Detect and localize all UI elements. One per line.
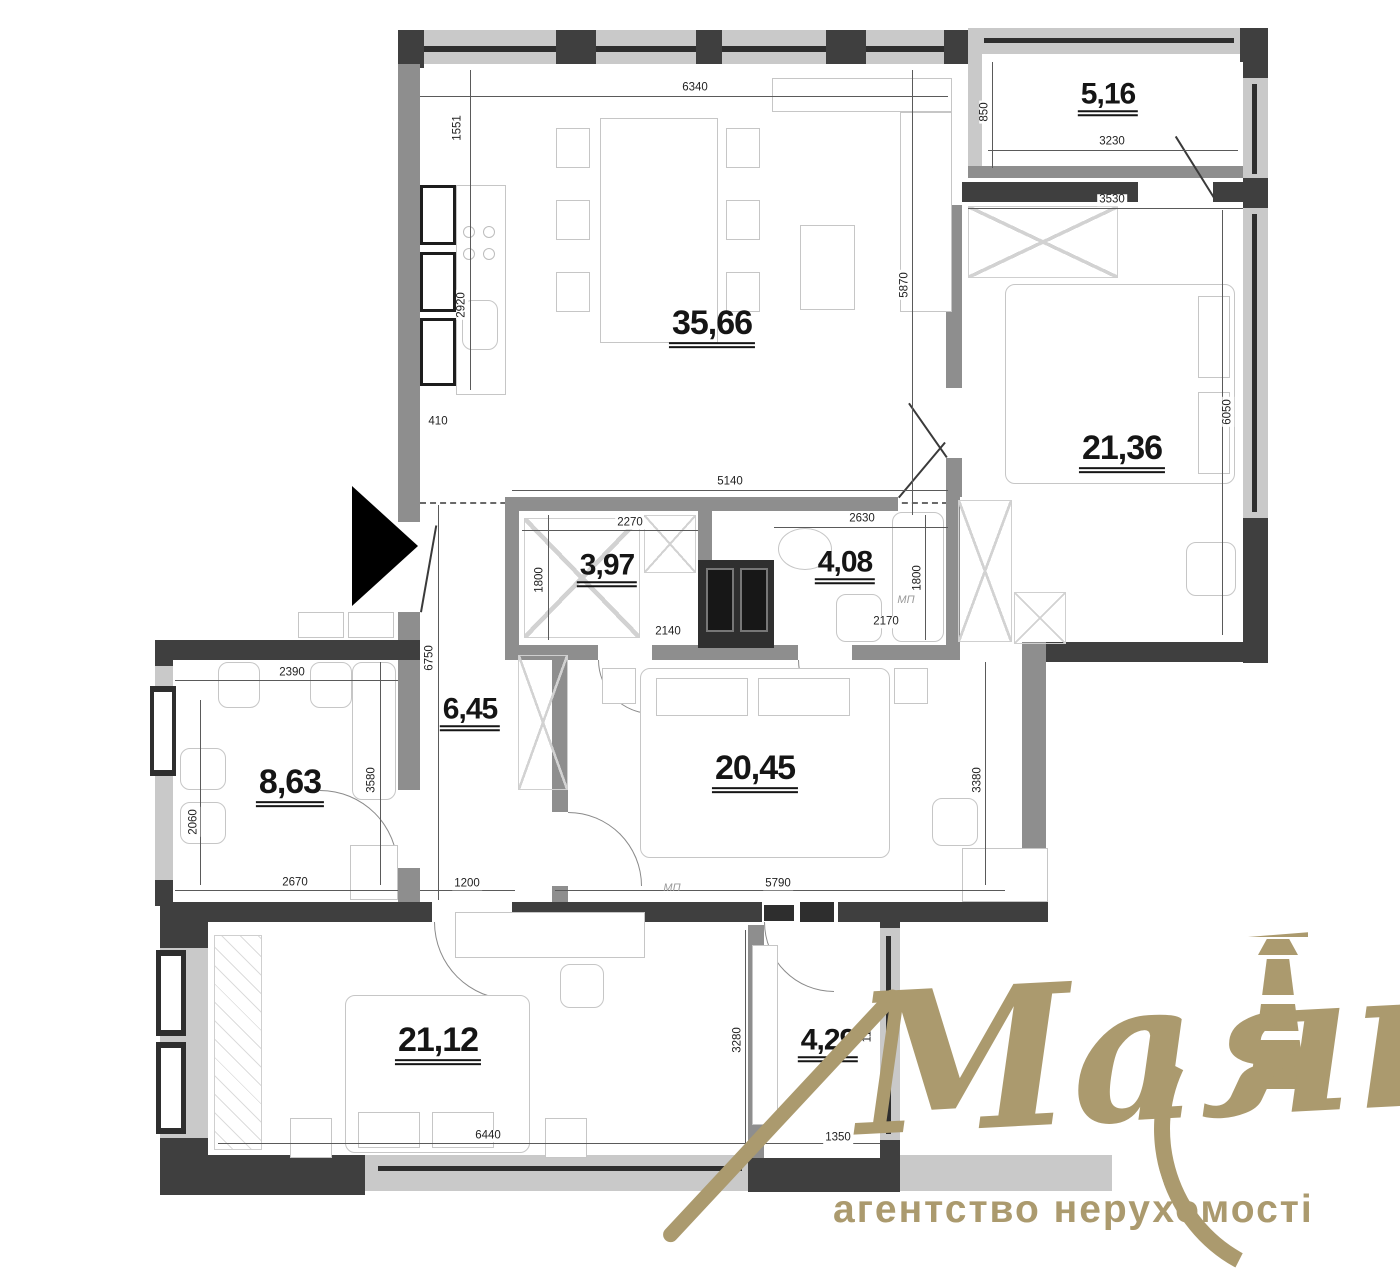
dim-410: 410 bbox=[426, 416, 449, 428]
room-label-living: 35,66 bbox=[669, 306, 755, 348]
dim-3230: 3230 bbox=[1097, 136, 1127, 148]
balcony-shelf bbox=[752, 945, 778, 1125]
dim-line bbox=[925, 515, 926, 640]
dim-line bbox=[745, 930, 746, 1143]
dim-1200: 1200 bbox=[452, 878, 482, 890]
kitchen-unit bbox=[420, 252, 456, 312]
room-label-hall: 6,45 bbox=[440, 693, 500, 731]
sofa-back bbox=[772, 78, 952, 112]
toilet bbox=[180, 748, 226, 790]
mp-label-bath: МП bbox=[897, 594, 914, 606]
dim-line bbox=[992, 62, 993, 168]
room-label-balcony-top: 5,16 bbox=[1078, 78, 1138, 116]
wall-bathL-right bbox=[398, 868, 420, 905]
window-pane bbox=[161, 1048, 181, 1128]
balcony-door-frame bbox=[764, 905, 794, 921]
nightstand bbox=[545, 1118, 587, 1158]
kitchen-unit bbox=[420, 185, 456, 245]
entrance-arrow-icon bbox=[352, 486, 418, 606]
wardrobe bbox=[518, 655, 568, 790]
dim-line bbox=[175, 680, 398, 681]
dim-3580: 3580 bbox=[366, 765, 378, 795]
chair bbox=[556, 272, 590, 312]
dim-line bbox=[548, 515, 549, 640]
window-pane bbox=[154, 692, 172, 770]
pillow bbox=[758, 678, 850, 716]
balcony-parapet bbox=[968, 166, 1268, 178]
wall-bath-divider bbox=[698, 511, 712, 566]
chair bbox=[932, 798, 978, 846]
brand-name: Маяк bbox=[850, 936, 1400, 1164]
kitchen-unit bbox=[420, 318, 456, 386]
dim-line bbox=[420, 890, 515, 891]
window-bottom bbox=[378, 1166, 742, 1171]
dim-line bbox=[555, 890, 1005, 891]
dim-1551: 1551 bbox=[452, 113, 464, 143]
balcony-window-frame bbox=[800, 902, 834, 922]
chair bbox=[556, 128, 590, 168]
sink bbox=[218, 662, 260, 708]
dim-3530: 3530 bbox=[1097, 194, 1127, 206]
window-top bbox=[866, 46, 944, 52]
dim-3380: 3380 bbox=[972, 765, 984, 795]
dim-2630: 2630 bbox=[847, 513, 877, 525]
mp-label-left: МП bbox=[663, 882, 680, 894]
dim-line bbox=[175, 890, 398, 891]
wall-pier bbox=[556, 30, 596, 64]
wall-bath-top bbox=[505, 497, 898, 511]
wall-bathL-right bbox=[398, 662, 420, 790]
window-top bbox=[596, 46, 696, 52]
wall-pier bbox=[696, 30, 722, 64]
dim-line bbox=[968, 208, 1243, 209]
dim-1800-right: 1800 bbox=[912, 563, 924, 593]
stove-burner bbox=[483, 226, 495, 238]
nightstand bbox=[602, 668, 636, 704]
dim-2170: 2170 bbox=[871, 616, 901, 628]
wall-bath-bottom bbox=[852, 645, 960, 660]
wall-right bbox=[1243, 518, 1268, 663]
wall-pier bbox=[826, 30, 866, 64]
wall-left-upper bbox=[398, 64, 420, 522]
chair bbox=[560, 964, 604, 1008]
wardrobe bbox=[1014, 592, 1066, 644]
dim-2060: 2060 bbox=[188, 807, 200, 837]
wall-bottom-window bbox=[365, 1155, 755, 1191]
dim-2270: 2270 bbox=[615, 517, 645, 529]
desk bbox=[962, 848, 1048, 902]
stove-burner bbox=[463, 226, 475, 238]
dim-line bbox=[470, 70, 471, 390]
brand-subtitle: агентство нерухомості bbox=[833, 1188, 1314, 1232]
wall-right bbox=[1243, 178, 1268, 208]
dim-6750: 6750 bbox=[424, 643, 436, 673]
wall-mid-horizontal bbox=[160, 902, 432, 922]
dim-2670: 2670 bbox=[280, 877, 310, 889]
dim-5140: 5140 bbox=[715, 476, 745, 488]
window-top bbox=[424, 46, 556, 52]
dim-line bbox=[420, 96, 948, 97]
wardrobe bbox=[958, 500, 1012, 642]
dim-line bbox=[380, 662, 381, 885]
dim-line bbox=[912, 70, 913, 515]
wall-right bbox=[1243, 28, 1268, 78]
wall-mid-horizontal bbox=[838, 902, 1048, 922]
door-arc-bedroomM bbox=[568, 812, 642, 886]
room-label-bedroom-right: 21,36 bbox=[1079, 431, 1165, 473]
room-label-bath-b: 4,08 bbox=[815, 546, 875, 584]
shaft-panel bbox=[740, 568, 768, 632]
washing-machine bbox=[644, 515, 696, 573]
pillow bbox=[1198, 296, 1230, 378]
nightstand bbox=[894, 668, 928, 704]
dim-2140: 2140 bbox=[653, 626, 683, 638]
pillow bbox=[656, 678, 748, 716]
chair bbox=[556, 200, 590, 240]
wall-bedroomR-left bbox=[946, 458, 962, 497]
door-leaf-bedroomR bbox=[908, 403, 947, 458]
wall-bath-left bbox=[505, 497, 519, 657]
dim-2390: 2390 bbox=[277, 667, 307, 679]
washing-machine bbox=[350, 845, 398, 900]
wall-bathL-top bbox=[165, 640, 420, 660]
wall-pier bbox=[398, 30, 424, 68]
dim-850: 850 bbox=[979, 100, 991, 123]
chair bbox=[726, 200, 760, 240]
wall-bedroomR-bottom bbox=[1046, 642, 1243, 662]
wardrobe bbox=[214, 935, 262, 1150]
dim-1350: 1350 bbox=[823, 1132, 853, 1144]
desk bbox=[455, 912, 645, 958]
floor-plan: 6340 1551 2920 410 850 3230 3530 5870 60… bbox=[0, 0, 1400, 1286]
dim-6340: 6340 bbox=[680, 82, 710, 94]
stove-burner bbox=[463, 248, 475, 260]
dim-6050: 6050 bbox=[1222, 397, 1234, 427]
entrance-door-leaf bbox=[420, 525, 437, 612]
wall-bottom bbox=[160, 1155, 365, 1195]
room-label-bedroom-bottom: 21,12 bbox=[395, 1023, 481, 1065]
dim-line bbox=[774, 527, 948, 528]
dim-5870: 5870 bbox=[899, 270, 911, 300]
stove-burner bbox=[483, 248, 495, 260]
chair bbox=[726, 128, 760, 168]
dim-3280: 3280 bbox=[732, 1025, 744, 1055]
dim-line bbox=[512, 490, 948, 491]
dim-line bbox=[218, 1143, 756, 1144]
dim-5790: 5790 bbox=[763, 878, 793, 890]
dim-line bbox=[985, 662, 986, 885]
wall-pier bbox=[944, 30, 968, 64]
window-balcony-top bbox=[984, 38, 1234, 43]
room-label-bedroom-mid: 20,45 bbox=[712, 751, 798, 793]
window-right bbox=[1252, 214, 1257, 512]
dim-6440: 6440 bbox=[473, 1130, 503, 1142]
wall-pier bbox=[155, 640, 173, 666]
cabinet bbox=[298, 612, 344, 638]
window-pane bbox=[161, 956, 181, 1030]
window-top bbox=[722, 46, 826, 52]
wall-pier bbox=[880, 902, 900, 928]
dim-2920: 2920 bbox=[456, 290, 468, 320]
dim-1800-left: 1800 bbox=[534, 565, 546, 595]
dim-line bbox=[988, 150, 1238, 151]
coffee-table bbox=[800, 225, 855, 310]
shaft-panel bbox=[706, 568, 734, 632]
wall-pier bbox=[160, 922, 208, 948]
wardrobe bbox=[968, 206, 1118, 278]
cabinet bbox=[348, 612, 394, 638]
window-right bbox=[1252, 84, 1257, 174]
dim-line bbox=[200, 700, 201, 885]
chair bbox=[1186, 542, 1236, 596]
sink bbox=[310, 662, 352, 708]
room-label-bath-a: 3,97 bbox=[577, 549, 637, 587]
nightstand bbox=[290, 1118, 332, 1158]
wall-bedroomR-top bbox=[1213, 182, 1243, 202]
room-label-bath-left: 8,63 bbox=[256, 765, 324, 807]
